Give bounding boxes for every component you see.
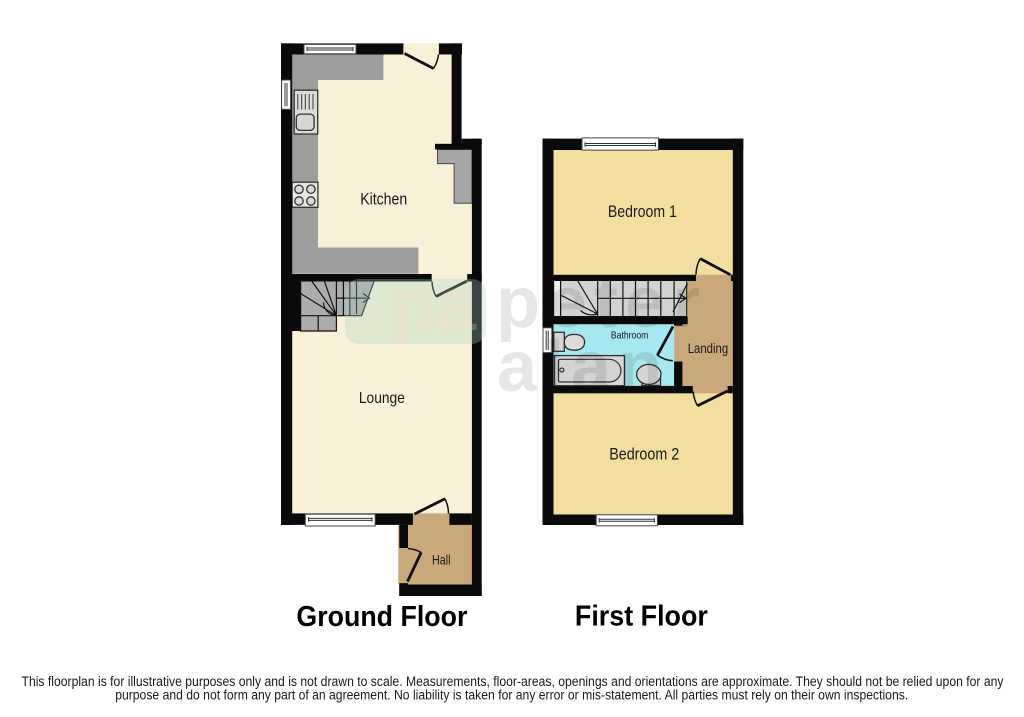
svg-text:purpose and do not form any pa: purpose and do not form any part of an a… [115, 687, 908, 702]
svg-text:Hall: Hall [432, 551, 451, 567]
svg-text:First Floor: First Floor [575, 600, 708, 632]
svg-text:alan: alan [497, 327, 669, 407]
svg-text:pa: pa [390, 263, 477, 346]
svg-text:Kitchen: Kitchen [360, 190, 407, 209]
svg-text:Ground Floor: Ground Floor [296, 601, 467, 633]
svg-text:Bedroom 2: Bedroom 2 [609, 445, 679, 463]
svg-text:Bedroom 1: Bedroom 1 [608, 203, 677, 221]
svg-text:Lounge: Lounge [359, 390, 405, 407]
